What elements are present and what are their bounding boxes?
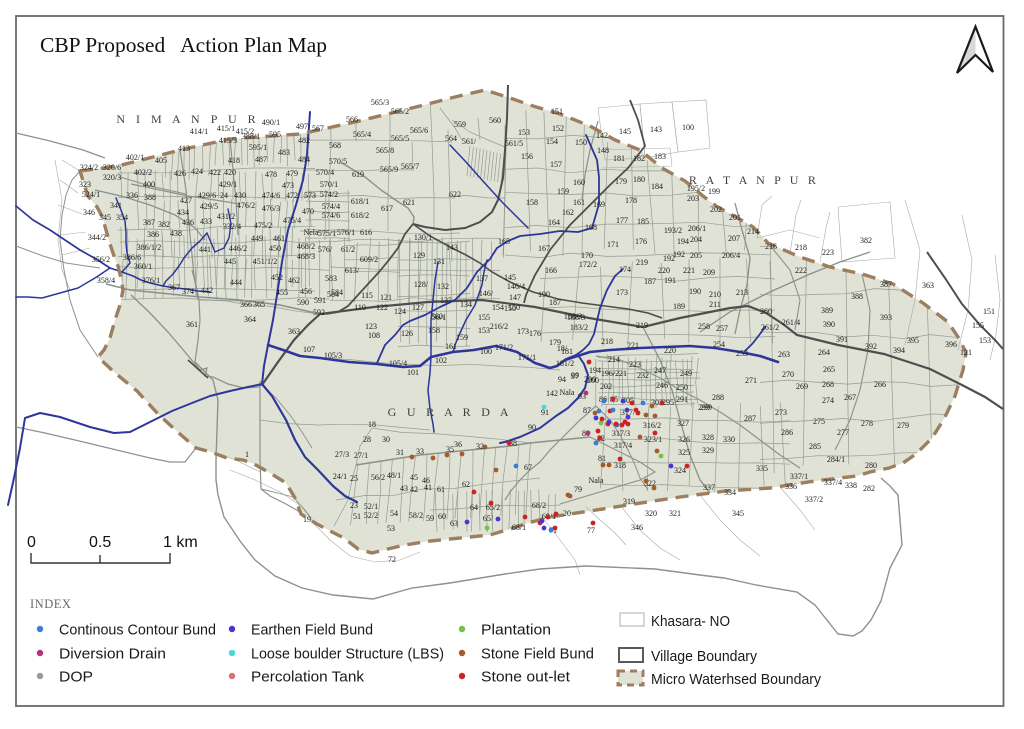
svg-text:478: 478	[265, 170, 277, 179]
svg-text:61/2: 61/2	[341, 245, 355, 254]
svg-text:559: 559	[454, 120, 466, 129]
svg-text:100: 100	[480, 347, 492, 356]
svg-text:617: 617	[381, 204, 393, 213]
svg-text:171/1: 171/1	[518, 353, 536, 362]
svg-text:33: 33	[416, 447, 424, 456]
svg-text:30: 30	[382, 435, 390, 444]
svg-text:216: 216	[765, 242, 777, 251]
svg-text:337/4: 337/4	[824, 478, 842, 487]
svg-text:247: 247	[654, 366, 666, 375]
svg-text:405: 405	[155, 156, 167, 165]
svg-text:177: 177	[616, 216, 628, 225]
svg-text:595: 595	[269, 130, 281, 139]
svg-text:129: 129	[413, 251, 425, 260]
svg-text:24/1: 24/1	[333, 472, 347, 481]
svg-text:455: 455	[276, 288, 288, 297]
svg-text:19: 19	[303, 515, 311, 524]
svg-text:393: 393	[880, 313, 892, 322]
svg-text:438: 438	[170, 229, 182, 238]
svg-text:574/4: 574/4	[322, 202, 340, 211]
svg-text:386/6: 386/6	[123, 253, 141, 262]
svg-text:176: 176	[635, 237, 647, 246]
svg-text:285: 285	[809, 442, 821, 451]
svg-text:263: 263	[778, 350, 790, 359]
svg-text:392: 392	[865, 342, 877, 351]
svg-text:187: 187	[549, 298, 561, 307]
svg-text:565/5: 565/5	[391, 134, 409, 143]
svg-text:573: 573	[304, 191, 316, 200]
svg-text:205: 205	[690, 251, 702, 260]
svg-text:206/4: 206/4	[722, 251, 740, 260]
svg-text:433: 433	[200, 217, 212, 226]
svg-text:150: 150	[575, 138, 587, 147]
svg-text:324/2: 324/2	[80, 163, 98, 172]
svg-text:18/: 18/	[557, 344, 568, 353]
svg-text:269: 269	[796, 382, 808, 391]
svg-text:249: 249	[680, 369, 692, 378]
svg-text:387: 387	[143, 218, 155, 227]
svg-text:567: 567	[312, 124, 324, 133]
svg-text:Village Boundary: Village Boundary	[651, 648, 757, 665]
svg-text:570/5: 570/5	[329, 157, 347, 166]
svg-text:445: 445	[224, 257, 236, 266]
svg-text:325: 325	[678, 448, 690, 457]
svg-text:415/1: 415/1	[217, 124, 235, 133]
svg-text:128/: 128/	[414, 280, 429, 289]
svg-text:110: 110	[354, 303, 366, 312]
svg-text:429/5: 429/5	[200, 202, 218, 211]
svg-text:164: 164	[548, 218, 560, 227]
svg-text:424: 424	[191, 167, 203, 176]
svg-text:257: 257	[716, 324, 728, 333]
svg-text:68/2: 68/2	[532, 501, 546, 510]
svg-text:389: 389	[821, 306, 833, 315]
svg-text:122: 122	[376, 303, 388, 312]
svg-text:65/2: 65/2	[486, 503, 500, 512]
svg-text:561/5: 561/5	[505, 139, 523, 148]
svg-text:524/1: 524/1	[82, 190, 100, 199]
svg-text:31: 31	[396, 448, 404, 457]
svg-text:223: 223	[629, 360, 641, 369]
svg-text:451/1/2: 451/1/2	[253, 257, 277, 266]
svg-text:219: 219	[636, 258, 648, 267]
svg-text:265: 265	[823, 365, 835, 374]
svg-text:221: 221	[627, 341, 639, 350]
svg-text:490/1: 490/1	[262, 118, 280, 127]
svg-text:250: 250	[676, 383, 688, 392]
svg-text:194: 194	[677, 237, 689, 246]
svg-text:613/: 613/	[345, 266, 360, 275]
svg-text:223: 223	[822, 248, 834, 257]
svg-text:146/: 146/	[479, 289, 494, 298]
svg-text:181: 181	[613, 154, 625, 163]
svg-text:152: 152	[552, 124, 564, 133]
svg-text:183: 183	[654, 152, 666, 161]
svg-text:45: 45	[410, 473, 418, 482]
svg-text:127: 127	[412, 303, 424, 312]
svg-text:576/: 576/	[318, 245, 333, 254]
svg-text:565/8: 565/8	[376, 146, 394, 155]
svg-text:105/3: 105/3	[324, 351, 342, 360]
svg-text:584: 584	[327, 290, 339, 299]
svg-text:180: 180	[633, 175, 645, 184]
svg-text:1: 1	[245, 450, 249, 459]
svg-text:Stone out-let: Stone out-let	[481, 669, 571, 686]
svg-text:N I M A N P U R: N I M A N P U R	[116, 112, 259, 126]
svg-text:90: 90	[528, 423, 536, 432]
svg-text:102: 102	[435, 356, 447, 365]
svg-text:415/3: 415/3	[219, 136, 237, 145]
svg-text:364: 364	[244, 315, 256, 324]
svg-text:258: 258	[698, 322, 710, 331]
svg-text:366: 366	[240, 300, 252, 309]
svg-text:195/2: 195/2	[687, 184, 705, 193]
svg-text:391: 391	[836, 335, 848, 344]
svg-text:0.5: 0.5	[89, 534, 111, 551]
svg-text:170: 170	[581, 251, 593, 260]
svg-text:338: 338	[845, 481, 857, 490]
svg-text:446/2: 446/2	[229, 244, 247, 253]
svg-text:162: 162	[562, 208, 574, 217]
svg-text:418: 418	[228, 156, 240, 165]
svg-text:158: 158	[526, 198, 538, 207]
svg-text:358/4: 358/4	[97, 276, 115, 285]
svg-text:361: 361	[186, 320, 198, 329]
svg-text:334: 334	[724, 488, 736, 497]
svg-text:576/1: 576/1	[337, 228, 355, 237]
svg-text:67: 67	[524, 463, 532, 472]
svg-text:155: 155	[478, 313, 490, 322]
svg-text:18: 18	[368, 420, 376, 429]
svg-text:271: 271	[745, 376, 757, 385]
svg-text:319: 319	[623, 497, 635, 506]
svg-text:Percolation Tank: Percolation Tank	[251, 669, 365, 686]
svg-text:476/2: 476/2	[237, 201, 255, 210]
svg-text:345: 345	[732, 509, 744, 518]
svg-text:288: 288	[712, 393, 724, 402]
svg-text:42: 42	[410, 485, 418, 494]
svg-text:56/1: 56/1	[432, 313, 446, 322]
svg-text:145: 145	[619, 127, 631, 136]
svg-text:564: 564	[445, 134, 457, 143]
svg-text:206/1: 206/1	[688, 224, 706, 233]
svg-text:441: 441	[199, 245, 211, 254]
svg-text:462: 462	[288, 276, 300, 285]
svg-text:169: 169	[593, 200, 605, 209]
svg-text:193/2: 193/2	[664, 226, 682, 235]
svg-text:387: 387	[880, 280, 892, 289]
svg-text:317/3: 317/3	[612, 429, 630, 438]
svg-text:156: 156	[521, 152, 533, 161]
svg-text:52/1: 52/1	[364, 502, 378, 511]
svg-text:618/2: 618/2	[351, 211, 369, 220]
svg-text:429/1: 429/1	[219, 180, 237, 189]
svg-text:72: 72	[388, 555, 396, 564]
svg-text:336: 336	[785, 482, 797, 491]
svg-text:337/1: 337/1	[790, 472, 808, 481]
svg-text:147: 147	[509, 293, 521, 302]
svg-text:329: 329	[702, 446, 714, 455]
svg-text:53: 53	[387, 524, 395, 533]
svg-text:191: 191	[664, 276, 676, 285]
svg-text:345: 345	[99, 213, 111, 222]
svg-text:181/2: 181/2	[556, 359, 574, 368]
svg-text:449: 449	[251, 234, 263, 243]
svg-text:137: 137	[476, 274, 488, 283]
svg-text:194: 194	[589, 366, 601, 375]
svg-text:202: 202	[600, 382, 612, 391]
svg-text:159: 159	[557, 187, 569, 196]
svg-text:277: 277	[837, 428, 849, 437]
svg-text:218: 218	[795, 243, 807, 252]
svg-text:382: 382	[158, 220, 170, 229]
svg-text:326: 326	[678, 435, 690, 444]
svg-text:158: 158	[428, 326, 440, 335]
svg-text:87: 87	[583, 406, 591, 415]
svg-text:609/2: 609/2	[360, 255, 378, 264]
svg-text:115: 115	[361, 291, 373, 300]
svg-text:166: 166	[545, 266, 557, 275]
svg-text:337: 337	[703, 483, 715, 492]
svg-text:165: 165	[498, 237, 510, 246]
svg-text:299: 299	[698, 403, 710, 412]
svg-text:DOP: DOP	[59, 669, 93, 686]
svg-text:43: 43	[400, 484, 408, 493]
svg-text:324: 324	[674, 466, 686, 475]
svg-text:211: 211	[709, 300, 721, 309]
svg-text:363: 363	[288, 327, 300, 336]
svg-text:475/4: 475/4	[283, 216, 301, 225]
svg-text:137: 137	[440, 296, 452, 305]
svg-text:41: 41	[424, 483, 432, 492]
svg-text:209: 209	[703, 268, 715, 277]
svg-text:184: 184	[651, 182, 663, 191]
svg-text:336: 336	[126, 191, 138, 200]
svg-text:395: 395	[907, 336, 919, 345]
svg-text:56/2: 56/2	[371, 473, 385, 482]
svg-text:450: 450	[269, 244, 281, 253]
svg-text:354: 354	[116, 213, 128, 222]
svg-text:52/2: 52/2	[364, 511, 378, 520]
svg-text:203: 203	[687, 194, 699, 203]
svg-text:179: 179	[615, 177, 627, 186]
svg-text:183/2: 183/2	[570, 323, 588, 332]
svg-text:394: 394	[893, 346, 905, 355]
svg-text:327: 327	[677, 419, 689, 428]
svg-text:61: 61	[437, 485, 445, 494]
svg-text:187: 187	[644, 277, 656, 286]
svg-text:201: 201	[729, 213, 741, 222]
svg-text:23: 23	[350, 501, 358, 510]
svg-text:267: 267	[844, 393, 856, 402]
svg-text:320/3: 320/3	[103, 173, 121, 182]
svg-text:273: 273	[775, 408, 787, 417]
svg-text:167: 167	[538, 244, 550, 253]
svg-text:261/2: 261/2	[761, 323, 779, 332]
svg-text:565/7: 565/7	[401, 162, 419, 171]
svg-text:622: 622	[449, 190, 461, 199]
svg-text:59: 59	[426, 514, 434, 523]
svg-text:171: 171	[607, 240, 619, 249]
svg-text:363: 363	[922, 281, 934, 290]
svg-text:123: 123	[365, 322, 377, 331]
svg-text:316/2: 316/2	[643, 421, 661, 430]
svg-text:279: 279	[897, 421, 909, 430]
svg-text:332/4: 332/4	[223, 222, 241, 231]
svg-text:280: 280	[865, 461, 877, 470]
svg-text:153: 153	[518, 128, 530, 137]
svg-text:278: 278	[861, 419, 873, 428]
svg-text:1 km: 1 km	[163, 534, 198, 551]
svg-text:323: 323	[79, 180, 91, 189]
svg-text:442: 442	[201, 286, 213, 295]
svg-text:Plantation: Plantation	[481, 622, 551, 639]
svg-text:Loose boulder Structure (LBS): Loose boulder Structure (LBS)	[251, 646, 444, 663]
svg-text:484: 484	[298, 155, 310, 164]
svg-text:221: 221	[683, 266, 695, 275]
svg-text:148: 148	[597, 146, 609, 155]
svg-text:220: 220	[664, 346, 676, 355]
svg-text:210: 210	[709, 290, 721, 299]
svg-text:367: 367	[168, 283, 180, 292]
svg-text:396: 396	[945, 340, 957, 349]
svg-text:21: 21	[619, 369, 627, 378]
svg-text:79: 79	[574, 485, 582, 494]
svg-text:Diversion Drain: Diversion Drain	[59, 646, 166, 663]
svg-text:270: 270	[782, 370, 794, 379]
svg-text:483: 483	[278, 148, 290, 157]
svg-text:190: 190	[689, 287, 701, 296]
svg-text:68/1: 68/1	[512, 523, 526, 532]
svg-text:374: 374	[182, 287, 194, 296]
svg-text:365: 365	[253, 300, 265, 309]
svg-text:121: 121	[380, 293, 392, 302]
svg-text:570/4: 570/4	[316, 168, 334, 177]
svg-text:574/6: 574/6	[322, 211, 340, 220]
svg-text:124: 124	[394, 307, 406, 316]
svg-text:142: 142	[596, 131, 608, 140]
svg-text:287: 287	[744, 414, 756, 423]
svg-text:346: 346	[631, 523, 643, 532]
svg-text:565/3: 565/3	[371, 98, 389, 107]
svg-text:25: 25	[350, 474, 358, 483]
svg-text:INDEX: INDEX	[30, 597, 71, 611]
svg-text:145: 145	[504, 273, 516, 282]
svg-text:429/6: 429/6	[198, 191, 216, 200]
svg-text:592: 592	[313, 308, 325, 317]
svg-text:436: 436	[182, 218, 194, 227]
svg-text:254: 254	[713, 340, 725, 349]
svg-text:132: 132	[437, 282, 449, 291]
svg-text:157: 157	[550, 160, 562, 169]
svg-text:346: 346	[83, 208, 95, 217]
svg-text:173: 173	[616, 288, 628, 297]
svg-text:427: 427	[180, 196, 192, 205]
svg-text:475/2: 475/2	[254, 221, 272, 230]
svg-text:473: 473	[282, 181, 294, 190]
svg-text:402/2: 402/2	[134, 168, 152, 177]
svg-text:101: 101	[407, 368, 419, 377]
svg-text:58/2: 58/2	[409, 511, 423, 520]
svg-text:173: 173	[517, 327, 529, 336]
svg-text:185: 185	[637, 217, 649, 226]
svg-text:0: 0	[27, 534, 36, 551]
svg-text:444: 444	[230, 278, 242, 287]
svg-text:Nala: Nala	[588, 476, 604, 485]
svg-text:456: 456	[300, 287, 312, 296]
svg-text:172/2: 172/2	[579, 260, 597, 269]
svg-text:390: 390	[823, 320, 835, 329]
svg-text:94: 94	[558, 375, 566, 384]
svg-text:154: 154	[492, 303, 504, 312]
svg-text:402/1: 402/1	[126, 153, 144, 162]
svg-text:621: 621	[403, 198, 415, 207]
svg-text:286: 286	[781, 428, 793, 437]
svg-text:143: 143	[650, 125, 662, 134]
svg-text:60: 60	[438, 512, 446, 521]
svg-text:414/1: 414/1	[190, 127, 208, 136]
svg-text:479: 479	[286, 169, 298, 178]
svg-text:335: 335	[756, 464, 768, 473]
svg-text:54: 54	[390, 509, 398, 518]
svg-text:565/6: 565/6	[410, 126, 428, 135]
svg-text:126: 126	[401, 329, 413, 338]
svg-text:482: 482	[298, 136, 310, 145]
svg-text:105/4: 105/4	[389, 359, 407, 368]
svg-text:565/4: 565/4	[353, 130, 371, 139]
svg-text:204: 204	[690, 235, 702, 244]
svg-text:153: 153	[979, 336, 991, 345]
svg-text:328: 328	[702, 433, 714, 442]
svg-text:150: 150	[508, 303, 520, 312]
svg-text:388: 388	[144, 193, 156, 202]
svg-text:246: 246	[656, 381, 668, 390]
svg-text:260: 260	[760, 307, 772, 316]
svg-text:202: 202	[710, 205, 722, 214]
svg-text:282: 282	[863, 484, 875, 493]
svg-text:318: 318	[614, 461, 626, 470]
svg-text:261/4: 261/4	[782, 318, 800, 327]
svg-text:284/1: 284/1	[827, 455, 845, 464]
svg-text:182: 182	[633, 154, 645, 163]
svg-text:468/2: 468/2	[297, 242, 315, 251]
svg-text:168: 168	[585, 223, 597, 232]
svg-text:63: 63	[450, 519, 458, 528]
svg-text:178: 178	[625, 196, 637, 205]
svg-text:65/: 65/	[483, 514, 494, 523]
svg-text:134: 134	[460, 300, 472, 309]
svg-text:560: 560	[489, 116, 501, 125]
svg-text:461: 461	[273, 234, 285, 243]
svg-text:130/1: 130/1	[414, 233, 432, 242]
svg-text:388: 388	[851, 292, 863, 301]
svg-text:291: 291	[676, 395, 688, 404]
svg-text:386/1/2: 386/1/2	[137, 243, 161, 252]
svg-text:20: 20	[563, 509, 571, 518]
svg-text:360/1: 360/1	[134, 262, 152, 271]
svg-text:452: 452	[271, 273, 283, 282]
svg-text:337/2: 337/2	[805, 495, 823, 504]
svg-text:Earthen Field Bund: Earthen Field Bund	[251, 622, 373, 639]
svg-text:108: 108	[368, 331, 380, 340]
svg-text:199: 199	[708, 187, 720, 196]
svg-text:27/1: 27/1	[354, 451, 368, 460]
svg-text:216/2: 216/2	[490, 322, 508, 331]
svg-text:Nala: Nala	[559, 388, 575, 397]
svg-text:220: 220	[658, 266, 670, 275]
svg-text:192: 192	[663, 254, 675, 263]
svg-text:268: 268	[822, 380, 834, 389]
